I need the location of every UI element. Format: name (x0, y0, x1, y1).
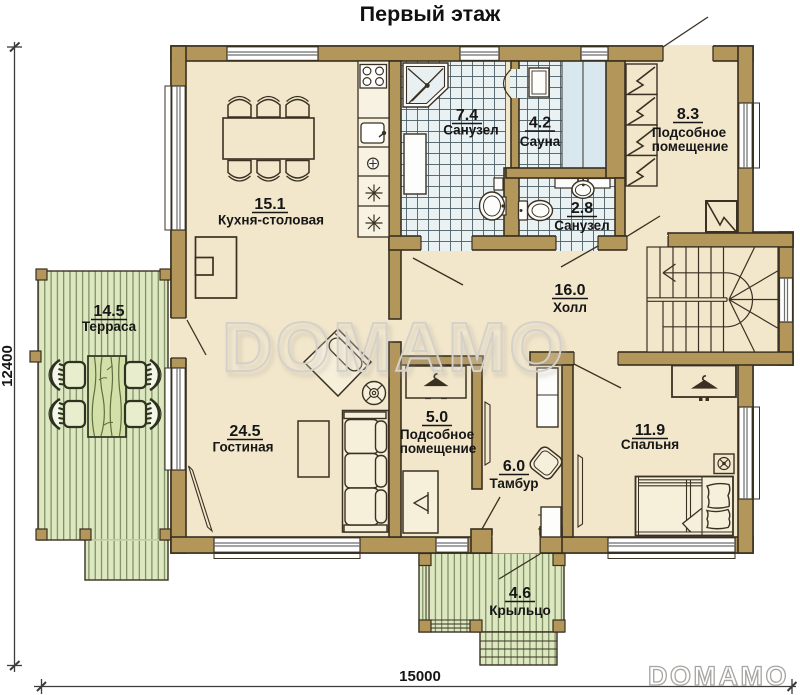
svg-text:6.0: 6.0 (503, 458, 525, 475)
svg-text:8.3: 8.3 (677, 106, 699, 123)
svg-text:Тамбур: Тамбур (490, 476, 539, 491)
svg-text:15000: 15000 (399, 668, 441, 685)
svg-text:4.2: 4.2 (529, 115, 551, 132)
svg-text:Спальня: Спальня (621, 437, 679, 452)
svg-text:2.8: 2.8 (571, 200, 593, 217)
svg-text:Терраса: Терраса (82, 319, 137, 334)
svg-text:15.1: 15.1 (254, 196, 285, 213)
svg-text:4.6: 4.6 (509, 585, 531, 602)
svg-text:Сауна: Сауна (520, 134, 561, 149)
svg-text:Кухня-столовая: Кухня-столовая (218, 213, 324, 228)
svg-text:Санузел: Санузел (443, 123, 499, 138)
svg-text:16.0: 16.0 (554, 282, 585, 299)
svg-text:DOMAMO: DOMAMO (648, 661, 789, 691)
svg-text:12400: 12400 (0, 345, 16, 387)
svg-text:7.4: 7.4 (456, 107, 478, 124)
svg-text:DOMAMO: DOMAMO (222, 308, 567, 386)
svg-text:24.5: 24.5 (229, 423, 260, 440)
svg-text:5.0: 5.0 (426, 409, 448, 426)
svg-text:Крыльцо: Крыльцо (489, 603, 550, 618)
svg-text:Подсобное: Подсобное (652, 125, 727, 140)
svg-text:Гостиная: Гостиная (212, 440, 273, 455)
svg-text:Первый этаж: Первый этаж (360, 2, 501, 26)
svg-text:14.5: 14.5 (93, 303, 124, 320)
svg-text:помещение: помещение (652, 139, 729, 154)
svg-text:Санузел: Санузел (554, 218, 610, 233)
svg-text:Подсобное: Подсобное (400, 427, 475, 442)
svg-text:помещение: помещение (400, 441, 477, 456)
